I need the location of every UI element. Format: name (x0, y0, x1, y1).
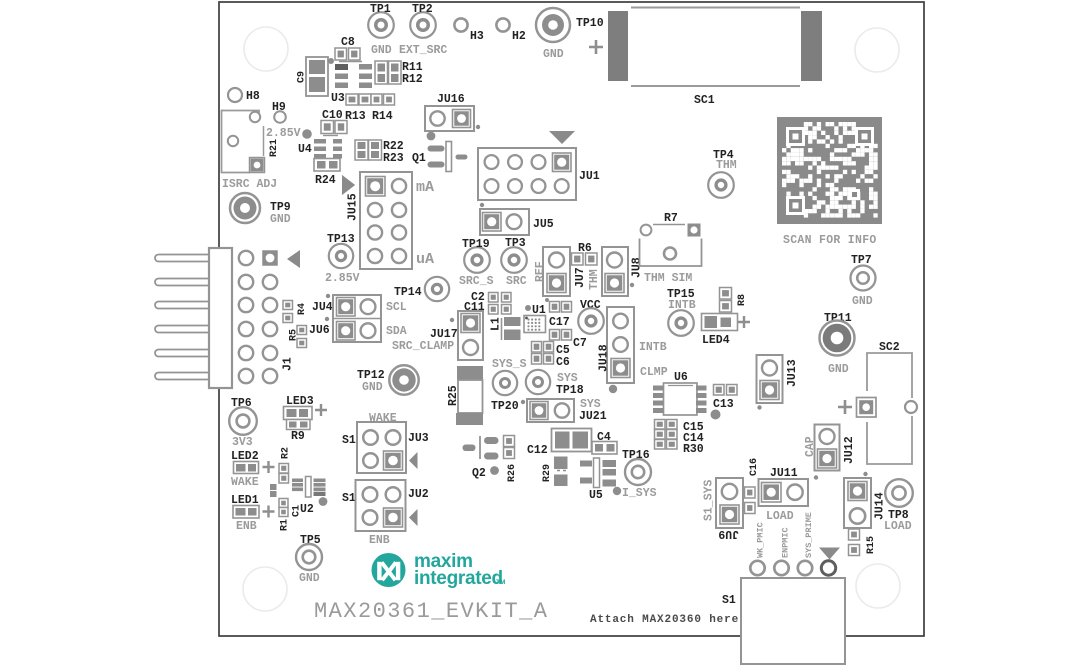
svg-text:JU16: JU16 (437, 93, 465, 106)
svg-text:R9: R9 (291, 430, 305, 443)
svg-text:LED4: LED4 (702, 334, 730, 347)
svg-text:EXT_SRC: EXT_SRC (399, 44, 447, 57)
svg-text:R26: R26 (507, 464, 518, 482)
svg-text:SYS_S: SYS_S (492, 358, 527, 371)
svg-text:H9: H9 (272, 101, 286, 114)
svg-text:J1: J1 (282, 357, 295, 371)
svg-text:SRC_CLAMP: SRC_CLAMP (392, 340, 454, 353)
svg-text:JU8: JU8 (631, 257, 644, 278)
svg-text:GND: GND (828, 363, 849, 376)
svg-text:R1: R1 (280, 519, 291, 531)
svg-text:R29: R29 (542, 464, 553, 482)
svg-text:WK_PMIC: WK_PMIC (756, 522, 766, 558)
svg-text:mA: mA (416, 179, 434, 196)
svg-text:R23: R23 (383, 152, 404, 165)
svg-text:S1: S1 (722, 594, 736, 607)
svg-text:Q1: Q1 (412, 152, 426, 165)
svg-text:SRC: SRC (506, 275, 527, 288)
svg-text:U6: U6 (674, 371, 688, 384)
svg-text:C7: C7 (573, 337, 587, 350)
svg-text:TP1: TP1 (370, 3, 391, 16)
svg-text:uA: uA (416, 251, 434, 268)
svg-text:L1: L1 (490, 317, 503, 331)
svg-text:Q2: Q2 (472, 467, 486, 480)
svg-text:JU7: JU7 (574, 267, 587, 288)
svg-text:TP18: TP18 (556, 384, 584, 397)
svg-text:2.85V: 2.85V (325, 272, 360, 285)
svg-text:INTB: INTB (639, 341, 667, 354)
svg-text:MAX20361_EVKIT_A: MAX20361_EVKIT_A (314, 599, 548, 624)
svg-text:SDA: SDA (386, 325, 407, 338)
svg-text:ENB: ENB (369, 534, 390, 547)
svg-text:R14: R14 (372, 110, 393, 123)
svg-text:GND: GND (299, 572, 320, 585)
svg-text:ENB: ENB (236, 520, 257, 533)
svg-text:JU6: JU6 (309, 324, 330, 337)
svg-text:TP14: TP14 (394, 286, 422, 299)
svg-text:R30: R30 (683, 443, 704, 456)
svg-text:CAP: CAP (804, 436, 817, 457)
svg-text:C6: C6 (556, 356, 570, 369)
svg-text:R2: R2 (281, 447, 292, 459)
svg-text:GND: GND (362, 381, 383, 394)
svg-text:C16: C16 (749, 458, 760, 476)
svg-text:WAKE: WAKE (231, 476, 259, 489)
svg-text:H3: H3 (470, 30, 484, 43)
svg-text:S1: S1 (342, 434, 356, 447)
svg-text:LOAD: LOAD (766, 510, 794, 523)
svg-text:R24: R24 (315, 174, 336, 187)
svg-text:THM: THM (588, 269, 601, 290)
svg-text:JU2: JU2 (408, 488, 429, 501)
svg-text:JU18: JU18 (598, 344, 611, 372)
svg-text:SCAN FOR INFO: SCAN FOR INFO (783, 234, 877, 247)
svg-text:R13: R13 (345, 110, 366, 123)
svg-text:2.85V: 2.85V (266, 127, 301, 140)
svg-text:U5: U5 (589, 489, 603, 502)
svg-text:ENPMIC: ENPMIC (781, 527, 791, 558)
svg-text:H8: H8 (246, 90, 260, 103)
svg-text:JU5: JU5 (533, 218, 554, 231)
svg-text:C8: C8 (341, 36, 355, 49)
svg-text:LOAD: LOAD (884, 520, 912, 533)
svg-text:R12: R12 (402, 73, 423, 86)
svg-text:TP20: TP20 (491, 400, 519, 413)
svg-text:GND: GND (852, 295, 873, 308)
svg-text:3V3: 3V3 (232, 436, 253, 449)
svg-text:JU9: JU9 (718, 527, 739, 540)
svg-text:ISRC ADJ: ISRC ADJ (222, 178, 277, 191)
svg-text:SCL: SCL (386, 301, 407, 314)
svg-text:TM: TM (496, 579, 505, 586)
svg-text:CLMP: CLMP (640, 366, 668, 379)
svg-text:TP2: TP2 (412, 3, 433, 16)
svg-text:TP3: TP3 (505, 237, 526, 250)
svg-text:GND: GND (543, 48, 564, 61)
svg-text:R4: R4 (297, 303, 308, 315)
svg-text:GND: GND (270, 213, 291, 226)
svg-text:JU21: JU21 (579, 410, 607, 423)
svg-text:C11: C11 (464, 301, 485, 314)
svg-text:TP13: TP13 (327, 233, 355, 246)
svg-text:S1: S1 (342, 492, 356, 505)
svg-text:JU15: JU15 (347, 193, 360, 221)
svg-text:JU13: JU13 (786, 359, 799, 387)
svg-text:JU4: JU4 (312, 301, 333, 314)
svg-text:R25: R25 (447, 385, 460, 406)
svg-text:R21: R21 (269, 139, 280, 157)
svg-text:U4: U4 (298, 143, 312, 156)
svg-text:C12: C12 (527, 444, 548, 457)
svg-text:R15: R15 (866, 536, 877, 554)
svg-text:C13: C13 (713, 398, 734, 411)
svg-text:S1_SYS: S1_SYS (703, 479, 716, 521)
svg-text:TP10: TP10 (576, 17, 604, 30)
svg-text:JU12: JU12 (843, 436, 856, 464)
svg-text:H2: H2 (512, 30, 526, 43)
svg-text:U2: U2 (300, 503, 314, 516)
svg-text:JU1: JU1 (579, 170, 600, 183)
svg-text:THM: THM (716, 159, 737, 172)
svg-text:U3: U3 (331, 92, 345, 105)
svg-text:GND: GND (371, 44, 392, 57)
svg-text:R7: R7 (664, 212, 678, 225)
svg-text:C17: C17 (549, 316, 570, 329)
svg-text:THM SIM: THM SIM (644, 272, 692, 285)
svg-text:R8: R8 (737, 294, 748, 306)
svg-text:integrated: integrated (414, 568, 503, 589)
svg-text:JU3: JU3 (408, 432, 429, 445)
svg-text:Attach MAX20360 here: Attach MAX20360 here (590, 614, 739, 626)
svg-text:SC2: SC2 (879, 341, 900, 354)
svg-text:SC1: SC1 (694, 94, 715, 107)
svg-text:SYS_PRIME: SYS_PRIME (804, 512, 814, 558)
svg-text:TP19: TP19 (462, 238, 490, 251)
svg-text:SRC_S: SRC_S (459, 275, 494, 288)
svg-text:I_SYS: I_SYS (622, 487, 657, 500)
